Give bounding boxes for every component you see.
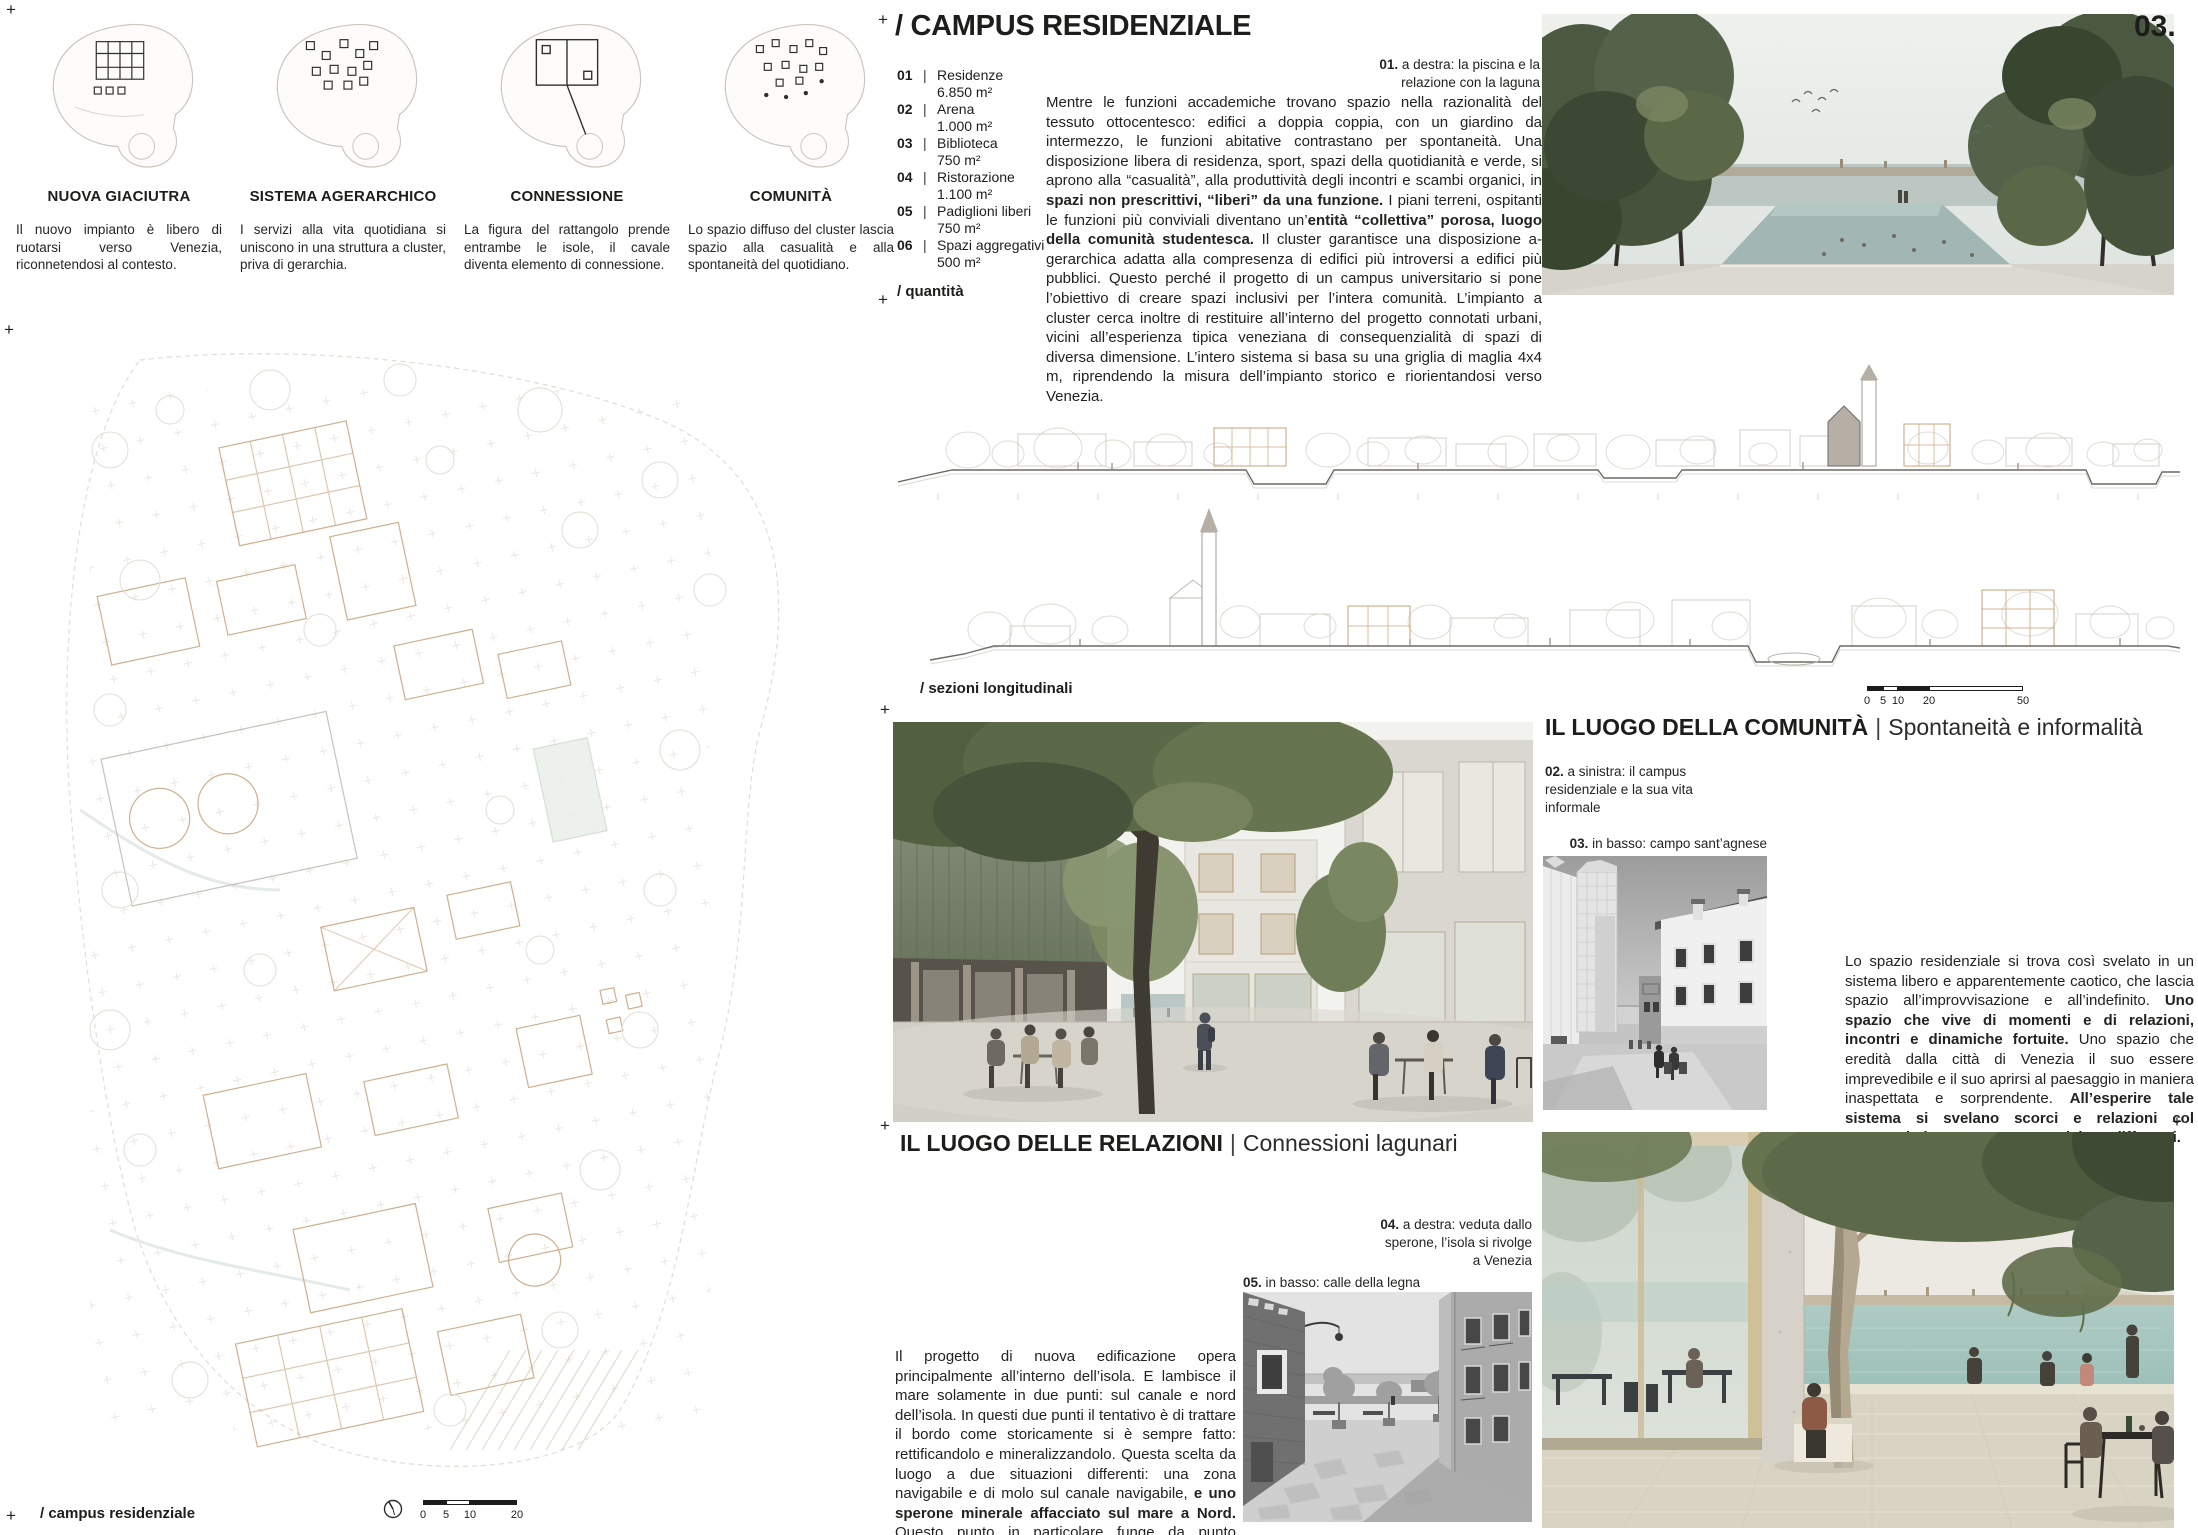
program-item: 02|Arena 1.000 m² — [897, 101, 1057, 135]
program-item-name: Padiglioni liberi — [937, 203, 1031, 219]
heading-bold: IL LUOGO DELLA COMUNITÀ — [1545, 714, 1868, 740]
render-campus-courtyard-photo — [893, 722, 1533, 1122]
caption-text: in basso: calle della legna — [1266, 1275, 1421, 1290]
concept-title: NUOVA GIACIUTRA — [16, 188, 222, 205]
presentation-board: + + + + + + + + NUOVA GIACIUTRA Il nuovo… — [0, 0, 2198, 1535]
caption-number: 01. — [1379, 57, 1398, 72]
program-item-area: 500 m² — [937, 254, 1057, 271]
caption-number: 03. — [1570, 836, 1589, 851]
concept-text: La figura del rattangolo prende entrambe… — [464, 221, 670, 274]
scale-tick: 0 — [420, 1509, 426, 1521]
scale-tick: 5 — [443, 1509, 449, 1521]
program-item-area: 1.100 m² — [937, 186, 1057, 203]
concept-text: Lo spazio diffuso del cluster lascia spa… — [688, 221, 894, 274]
program-item-area: 6.850 m² — [937, 84, 1057, 101]
program-item-name: Biblioteca — [937, 135, 998, 151]
north-compass-icon — [382, 1496, 406, 1524]
program-item-name: Ristorazione — [937, 169, 1015, 185]
program-item-number: 04 — [897, 169, 923, 186]
site-plan-drawing — [20, 330, 880, 1500]
caption-04: 04. a destra: veduta dallo sperone, l’is… — [1378, 1216, 1532, 1270]
concept-sketch-1 — [24, 12, 214, 180]
program-item: 05|Padiglioni liberi 750 m² — [897, 203, 1057, 237]
plan-label: / campus residenziale — [40, 1505, 195, 1522]
heading-bold: IL LUOGO DELLE RELAZIONI — [900, 1130, 1223, 1156]
program-item: 03|Biblioteca 750 m² — [897, 135, 1057, 169]
program-separator: | — [923, 135, 937, 152]
program-item: 06|Spazi aggregativi 500 m² — [897, 237, 1057, 271]
caption-number: 04. — [1380, 1217, 1399, 1232]
program-item-number: 06 — [897, 237, 923, 254]
program-item-number: 02 — [897, 101, 923, 118]
program-separator: | — [923, 169, 937, 186]
caption-text: in basso: campo sant’agnese — [1592, 836, 1767, 851]
concept-comunita: COMUNITÀ Lo spazio diffuso del cluster l… — [688, 12, 894, 274]
program-separator: | — [923, 101, 937, 118]
caption-text: a destra: veduta dallo sperone, l’isola … — [1385, 1217, 1532, 1268]
caption-text: a destra: la piscina e la relazione con … — [1401, 57, 1540, 90]
caption-05: 05. in basso: calle della legna — [1243, 1274, 1523, 1292]
caption-number: 02. — [1545, 764, 1564, 779]
caption-03: 03. in basso: campo sant’agnese — [1560, 835, 1767, 853]
concept-sistema-agerarchico: SISTEMA AGERARCHICO I servizi alla vita … — [240, 12, 446, 274]
concept-text: Il nuovo impianto è libero di ruotarsi v… — [16, 221, 222, 274]
page-title: / CAMPUS RESIDENZIALE — [895, 10, 1251, 43]
heading-separator: | — [1230, 1130, 1236, 1156]
program-item-name: Residenze — [937, 67, 1003, 83]
program-item-area: 750 m² — [937, 220, 1057, 237]
longitudinal-section-1-drawing — [898, 362, 2180, 502]
program-item-name: Spazi aggregativi — [937, 237, 1044, 253]
community-heading: IL LUOGO DELLA COMUNITÀ|Spontaneità e in… — [1545, 714, 2143, 741]
relations-heading: IL LUOGO DELLE RELAZIONI|Connessioni lag… — [900, 1130, 1458, 1157]
program-item-area: 1.000 m² — [937, 118, 1057, 135]
plus-mark: + — [880, 700, 890, 720]
scale-tick: 50 — [2017, 695, 2029, 707]
concept-title: SISTEMA AGERARCHICO — [240, 188, 446, 205]
heading-subtitle: Connessioni lagunari — [1243, 1130, 1458, 1156]
program-item-number: 03 — [897, 135, 923, 152]
heading-separator: | — [1875, 714, 1881, 740]
scale-tick: 10 — [1892, 695, 1904, 707]
photo-campo-sant-agnese — [1543, 856, 1767, 1110]
sections-label: / sezioni longitudinali — [920, 680, 1073, 697]
program-item: 01|Residenze 6.850 m² — [897, 67, 1057, 101]
caption-02: 02. a sinistra: il campus residenziale e… — [1545, 763, 1723, 817]
plus-mark: + — [4, 320, 14, 340]
concept-connessione: CONNESSIONE La figura del rattangolo pre… — [464, 12, 670, 274]
render-pool-lagoon-photo — [1542, 14, 2174, 295]
scale-tick: 5 — [1880, 695, 1886, 707]
caption-01: 01. a destra: la piscina e la relazione … — [1330, 56, 1540, 92]
concept-sketch-2 — [248, 12, 438, 180]
concept-nuova-giaciutra: NUOVA GIACIUTRA Il nuovo impianto è libe… — [16, 12, 222, 274]
concept-text: I servizi alla vita quotidiana si unisco… — [240, 221, 446, 274]
photo-calle-della-legna — [1243, 1292, 1532, 1522]
longitudinal-section-2-drawing — [930, 502, 2180, 677]
caption-number: 05. — [1243, 1275, 1262, 1290]
program-item-number: 05 — [897, 203, 923, 220]
render-sperone-terrace-photo — [1542, 1132, 2174, 1528]
scale-tick: 0 — [1864, 695, 1870, 707]
scale-tick: 20 — [1923, 695, 1935, 707]
program-label: / quantità — [897, 283, 964, 300]
scale-tick: 20 — [511, 1509, 523, 1521]
program-item-number: 01 — [897, 67, 923, 84]
heading-subtitle: Spontaneità e informalità — [1888, 714, 2142, 740]
plus-mark: + — [6, 1506, 16, 1526]
program-item-area: 750 m² — [937, 152, 1057, 169]
caption-text: a sinistra: il campus residenziale e la … — [1545, 764, 1693, 815]
intro-paragraph: Mentre le funzioni accademiche trovano s… — [1046, 93, 1542, 407]
concept-title: CONNESSIONE — [464, 188, 670, 205]
community-paragraph: Lo spazio residenziale si trova così sve… — [1845, 952, 2194, 1148]
concept-sketch-4 — [696, 12, 886, 180]
program-separator: | — [923, 67, 937, 84]
relations-paragraph: Il progetto di nuova edificazione opera … — [895, 1347, 1236, 1535]
program-list: 01|Residenze 6.850 m² 02|Arena 1.000 m² … — [897, 67, 1057, 271]
concept-title: COMUNITÀ — [688, 188, 894, 205]
plus-mark: + — [6, 0, 16, 20]
scale-tick: 10 — [464, 1509, 476, 1521]
program-item-name: Arena — [937, 101, 974, 117]
concept-sketch-3 — [472, 12, 662, 180]
page-number: 03. — [2134, 10, 2176, 44]
program-separator: | — [923, 237, 937, 254]
plus-mark: + — [878, 290, 888, 310]
program-item: 04|Ristorazione 1.100 m² — [897, 169, 1057, 203]
plus-mark: + — [880, 1116, 890, 1136]
program-separator: | — [923, 203, 937, 220]
